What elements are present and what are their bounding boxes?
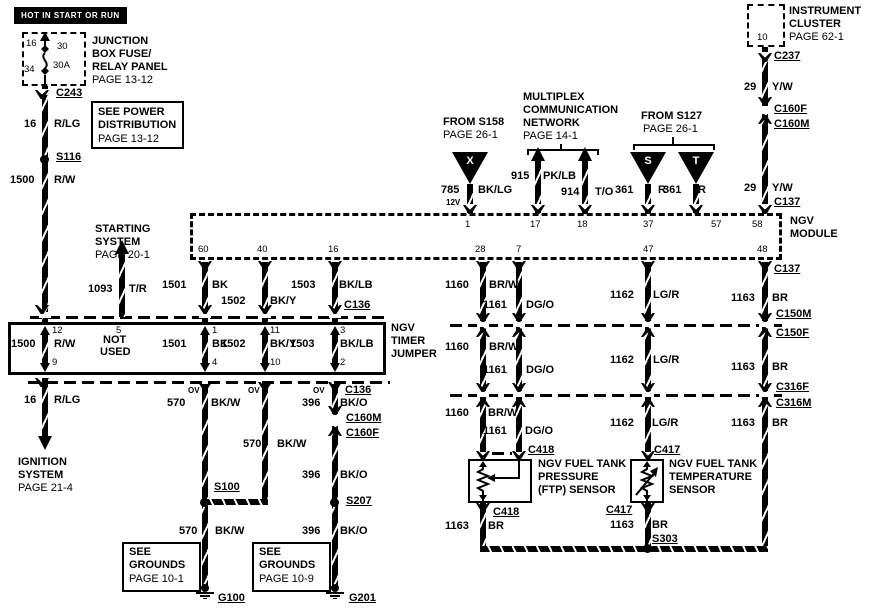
connector-label-c160m-396: C160M (346, 412, 381, 424)
junction-pin-34: 34 (24, 64, 35, 75)
temp-sensor-label-2: TEMPERATURE (669, 471, 752, 484)
wire-1501-upper-color: BK (212, 279, 228, 292)
jumper-wire-1503-number: 1503 (290, 338, 314, 351)
wire-1162 (645, 262, 651, 452)
connector-c150-line (450, 324, 782, 327)
ground-g201-icon (325, 584, 345, 599)
hot-in-start-or-run-tag: HOT IN START OR RUN (14, 7, 127, 24)
jumper-stub-1500 (42, 333, 48, 365)
module-pin-47: 47 (643, 244, 654, 255)
jumper-pin-12: 12 (52, 325, 63, 336)
wire-915-number: 915 (511, 170, 529, 183)
see-grounds-right-2: GROUNDS (259, 559, 315, 572)
wire-785-voltage-note: 12V (446, 198, 460, 207)
jumper-pin-1: 1 (212, 325, 217, 336)
wire-1500-number: 1500 (10, 174, 34, 187)
junction-box-page-ref: PAGE 13-12 (92, 74, 153, 87)
fuse-icon (38, 32, 52, 86)
thermistor-icon (632, 461, 662, 501)
wire-1161-s3-color: DG/O (525, 425, 553, 438)
s127-brace-end-left (633, 144, 635, 150)
wire-1093-number: 1093 (88, 283, 112, 296)
ngv-module-wiring-diagram: X S T (0, 0, 879, 612)
cluster-page-ref: PAGE 62-1 (789, 31, 844, 44)
jumper-pin-9: 9 (52, 357, 57, 368)
jumper-arrow-down-4 (200, 363, 210, 372)
wire-1160-s1-number: 1160 (445, 279, 469, 292)
cluster-pin-10: 10 (757, 32, 768, 43)
splice-s116-dot (40, 155, 49, 164)
jumper-wire-1502-number: 1502 (221, 338, 245, 351)
ftp-sensor-label-3: (FTP) SENSOR (538, 484, 616, 497)
triangle-connector-t-icon: T (678, 152, 714, 184)
wire-570-left (202, 384, 208, 586)
junction-box-label-2: BOX FUSE/ (92, 48, 151, 61)
wire-1160-s2-number: 1160 (445, 341, 469, 354)
wire-1162-s3-number: 1162 (610, 417, 634, 430)
module-pin-40: 40 (257, 244, 268, 255)
wire-16-number: 16 (24, 118, 36, 131)
wire-1163-s2-color: BR (772, 361, 788, 374)
wire-1162-s3-color: LG/R (652, 417, 678, 430)
connector-label-c150m: C150M (776, 308, 811, 320)
connector-label-c417-top: C417 (654, 444, 680, 456)
wire-16-color: R/LG (54, 118, 80, 131)
wire-1161-s2-number: 1161 (483, 364, 507, 377)
wire-1163-s1-number: 1163 (731, 292, 755, 305)
wire-1500-color: R/W (54, 174, 75, 187)
junction-box-label-1: JUNCTION (92, 35, 148, 48)
module-pin-7: 7 (516, 244, 521, 255)
jumper-title-2: TIMER (391, 335, 425, 348)
jumper-stub-1501 (202, 333, 208, 365)
s127-brace (633, 144, 715, 146)
jumper-arrow-down-2 (330, 363, 340, 372)
wire-396b-number: 396 (302, 469, 320, 482)
wire-1501-upper-number: 1501 (162, 279, 186, 292)
jumper-arrow-down-9 (40, 363, 50, 372)
multiplex-label-3: NETWORK (523, 117, 580, 130)
wire-785-color: BK/LG (478, 184, 512, 197)
wire-1163-ftp-number: 1163 (445, 520, 469, 533)
module-pin-17: 17 (530, 219, 541, 230)
see-grounds-right-1: SEE (259, 546, 281, 559)
splice-label-s207: S207 (346, 495, 372, 507)
wire-361t-number: 361 (663, 184, 681, 197)
see-power-label-2: DISTRIBUTION (98, 119, 176, 132)
wire-1502-upper-number: 1502 (221, 295, 245, 308)
starting-system-page-ref: PAGE 20-1 (95, 249, 150, 262)
from-s127-page-ref: PAGE 26-1 (643, 123, 698, 136)
wire-29-upper-number: 29 (744, 81, 756, 94)
ground-label-g201: G201 (349, 592, 376, 604)
wire-914-number: 914 (561, 186, 579, 199)
module-pin-37: 37 (643, 219, 654, 230)
multiplex-brace (527, 149, 599, 151)
connector-label-c137-top: C137 (774, 196, 800, 208)
from-s158-page-ref: PAGE 26-1 (443, 129, 498, 142)
connector-label-c136-upper: C136 (344, 299, 370, 311)
wire-1161-s3-number: 1161 (483, 425, 507, 438)
module-pin-57: 57 (711, 219, 722, 230)
wire-1161-s1-number: 1161 (483, 299, 507, 312)
module-pin-28: 28 (475, 244, 486, 255)
starting-system-label-1: STARTING (95, 223, 150, 236)
module-label-2: MODULE (790, 228, 838, 241)
wire-1163-right (762, 262, 768, 552)
multiplex-label-1: MULTIPLEX (523, 91, 585, 104)
wire-361t-color: R (698, 184, 706, 197)
jumper-pin-2: 2 (340, 357, 345, 368)
module-pin-1: 1 (465, 219, 470, 230)
wire-1093-to-starting (119, 253, 125, 317)
multiplex-brace-end-left (527, 149, 529, 155)
jumper-pin-3: 3 (340, 325, 345, 336)
wire-1162-s1-number: 1162 (610, 289, 634, 302)
wire-29-upper-color: Y/W (772, 81, 793, 94)
wire-1162-s2-color: LG/R (653, 354, 679, 367)
temp-sensor-label-1: NGV FUEL TANK (669, 458, 757, 471)
multiplex-page-ref: PAGE 14-1 (523, 130, 578, 143)
wire-1502-upper-color: BK/Y (270, 295, 296, 308)
splice-s207-dot (330, 498, 339, 507)
wire-1160-s2-color: BR/W (489, 341, 518, 354)
wire-1163-s3-color: BR (772, 417, 788, 430)
wire-16-ignition-number: 16 (24, 394, 36, 407)
connector-c418-line (492, 452, 512, 455)
wire-1160 (480, 262, 486, 452)
connector-label-c237: C237 (774, 50, 800, 62)
wire-1503-upper-color: BK/LB (339, 279, 373, 292)
jumper-title-1: NGV (391, 322, 415, 335)
module-pin-58: 58 (752, 219, 763, 230)
wire-570a-number: 570 (167, 397, 185, 410)
wire-570-mid (262, 384, 268, 505)
wire-1163-s1-color: BR (772, 292, 788, 305)
wire-1162-s1-color: LG/R (653, 289, 679, 302)
connector-label-c316f: C316F (776, 381, 809, 393)
module-label-1: NGV (790, 215, 814, 228)
connector-label-c316m: C316M (776, 397, 811, 409)
jumper-arrow-up-1 (200, 326, 210, 335)
wire-570b-color: BK/W (277, 438, 306, 451)
cluster-label-1: INSTRUMENT (789, 5, 861, 18)
wire-1160-s1-color: BR/W (489, 279, 518, 292)
triangle-connector-s-icon: S (630, 152, 666, 184)
see-grounds-left-1: SEE (129, 546, 151, 559)
ignition-system-label-2: SYSTEM (18, 469, 63, 482)
wire-16-ignition-color: R/LG (54, 394, 80, 407)
splice-s100-dot (200, 498, 209, 507)
module-pin-48: 48 (757, 244, 768, 255)
jumper-wire-1500-number: 1500 (11, 338, 35, 351)
wire-1162-s2-number: 1162 (610, 354, 634, 367)
splice-label-s303: S303 (652, 533, 678, 545)
jumper-pin-11: 11 (270, 325, 280, 336)
s127-brace-tick (672, 137, 674, 145)
jumper-wire-1500-color: R/W (54, 338, 75, 351)
module-pin-60: 60 (198, 244, 209, 255)
jumper-arrow-down-10 (260, 363, 270, 372)
wire-914-color: T/O (595, 186, 613, 199)
junction-pin-30a: 30A (53, 60, 70, 71)
junction-pin-30: 30 (57, 41, 68, 52)
wire-396a-color: BK/O (340, 397, 368, 410)
ground-g100-icon (195, 584, 215, 599)
wire-396b-color: BK/O (340, 469, 368, 482)
wire-1160-s3-number: 1160 (445, 407, 469, 420)
connector-label-c160f-396: C160F (346, 427, 379, 439)
jumper-ov-note-3: OV (313, 386, 325, 395)
connector-label-c243: C243 (56, 87, 82, 99)
wire-29-cluster (762, 47, 768, 213)
jumper-pin-4: 4 (212, 357, 217, 368)
connector-label-c137-bottom: C137 (774, 263, 800, 275)
multiplex-brace-tick (560, 144, 562, 150)
ftp-sensor-label-1: NGV FUEL TANK (538, 458, 626, 471)
wire-396c-color: BK/O (340, 525, 368, 538)
wire-915-color: PK/LB (543, 170, 576, 183)
jumper-arrow-up-11 (260, 326, 270, 335)
wire-570b-number: 570 (243, 438, 261, 451)
jumper-title-3: JUMPER (391, 348, 437, 361)
wire-1163-ftp-color: BR (488, 520, 504, 533)
splice-s303-dot (643, 544, 652, 553)
wire-1163-temp-color: BR (652, 519, 668, 532)
triangle-connector-x-icon: X (452, 152, 488, 184)
multiplex-brace-end-right (597, 149, 599, 155)
connector-label-c160f: C160F (774, 103, 807, 115)
see-grounds-left-2: GROUNDS (129, 559, 185, 572)
connector-label-c160m: C160M (774, 118, 809, 130)
ngv-module-box (190, 213, 782, 260)
wire-power-feed (42, 86, 48, 322)
junction-box-label-3: RELAY PANEL (92, 61, 168, 74)
see-power-page-ref: PAGE 13-12 (98, 133, 159, 146)
wire-1163-temp-number: 1163 (610, 519, 634, 532)
s127-brace-end-right (713, 144, 715, 150)
see-power-label-1: SEE POWER (98, 106, 165, 119)
connector-label-c417-bottom: C417 (606, 504, 632, 516)
jumper-wire-1501-number: 1501 (162, 338, 186, 351)
wire-1160-s3-color: BR/W (488, 407, 517, 420)
module-pin-16: 16 (328, 244, 339, 255)
connector-label-c418-top: C418 (528, 444, 554, 456)
wire-1161-s1-color: DG/O (526, 299, 554, 312)
wire-396c-number: 396 (302, 525, 320, 538)
temp-sensor-label-3: SENSOR (669, 484, 715, 497)
jumper-stub-1503 (332, 333, 338, 365)
jumper-pin-10: 10 (270, 357, 281, 368)
wire-29-lower-color: Y/W (772, 182, 793, 195)
jumper-not-used-2: USED (100, 346, 131, 359)
wire-570c-color: BK/W (215, 525, 244, 538)
wire-1163-s3-number: 1163 (731, 417, 755, 430)
ground-label-g100: G100 (218, 592, 245, 604)
junction-pin-16: 16 (26, 38, 37, 49)
potentiometer-icon (468, 461, 532, 501)
ignition-arrow-icon (38, 436, 52, 450)
jumper-arrow-up-3 (330, 326, 340, 335)
starting-system-label-2: SYSTEM (95, 236, 140, 249)
jumper-stub-1502 (262, 333, 268, 365)
wire-396a-number: 396 (302, 397, 320, 410)
ftp-sensor-label-2: PRESSURE (538, 471, 599, 484)
jumper-arrow-up-12 (40, 326, 50, 335)
wire-570a-color: BK/W (211, 397, 240, 410)
see-grounds-left-page: PAGE 10-1 (129, 573, 184, 586)
jumper-wire-1503-color: BK/LB (340, 338, 374, 351)
module-pin-18: 18 (577, 219, 588, 230)
jumper-ov-note-2: OV (248, 386, 260, 395)
see-grounds-right-page: PAGE 10-9 (259, 573, 314, 586)
wire-1163-s2-number: 1163 (731, 361, 755, 374)
from-s158-label: FROM S158 (443, 116, 504, 129)
ignition-system-label-1: IGNITION (18, 456, 67, 469)
connector-label-c150f: C150F (776, 327, 809, 339)
jumper-ov-note-1: OV (188, 386, 200, 395)
ignition-system-page-ref: PAGE 21-4 (18, 482, 73, 495)
wire-29-lower-number: 29 (744, 182, 756, 195)
multiplex-label-2: COMMUNICATION (523, 104, 618, 117)
wire-361s-number: 361 (615, 184, 633, 197)
wire-1093-color: T/R (129, 283, 147, 296)
wire-570c-number: 570 (179, 525, 197, 538)
wire-1161-s2-color: DG/O (526, 364, 554, 377)
splice-label-s100: S100 (214, 481, 240, 493)
connector-c316-line (450, 394, 782, 397)
cluster-label-2: CLUSTER (789, 18, 841, 31)
wire-1503-upper-number: 1503 (291, 279, 315, 292)
wire-1163-ground-bus (480, 546, 768, 552)
connector-label-c136-lower: C136 (345, 384, 371, 396)
splice-label-s116: S116 (56, 151, 81, 163)
connector-label-c418-bottom: C418 (493, 506, 519, 518)
wire-785-number: 785 (441, 184, 459, 197)
wire-570-elbow (202, 499, 268, 505)
from-s127-label: FROM S127 (641, 110, 702, 123)
